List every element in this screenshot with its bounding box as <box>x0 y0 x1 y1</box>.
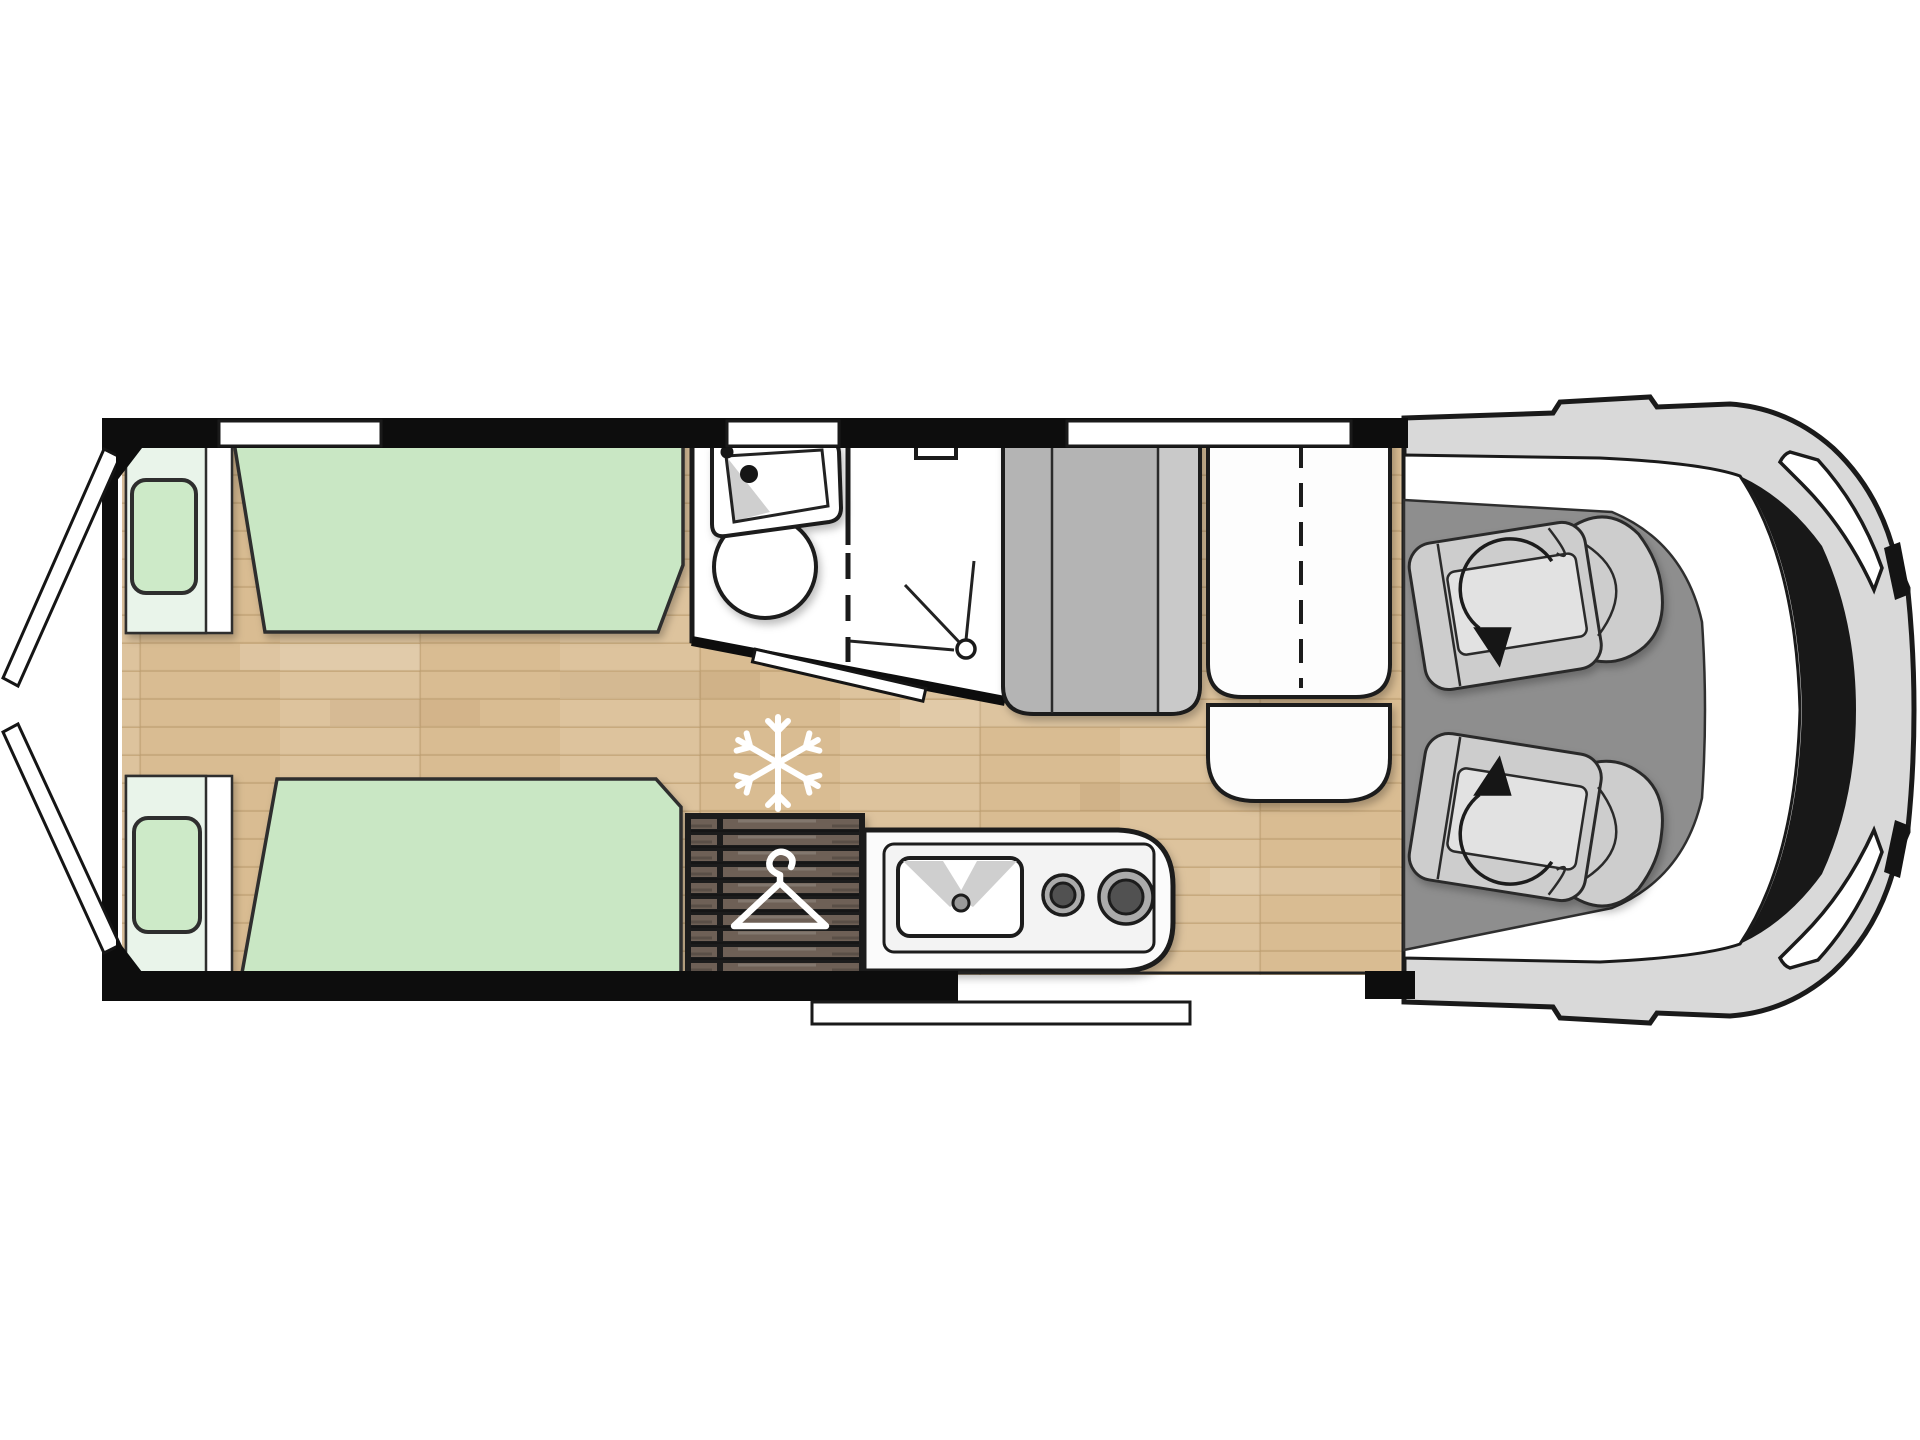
entry-step <box>812 1002 1190 1024</box>
window-bedroom <box>219 421 381 446</box>
kitchen-tap <box>953 895 969 911</box>
driver-cab <box>1404 397 1914 1023</box>
window-washroom <box>727 421 839 446</box>
rear-doors-open <box>3 448 142 972</box>
wall-bottom <box>102 971 958 1001</box>
bed-pillow-top <box>132 480 196 593</box>
floorplan-page <box>0 0 1920 1440</box>
bed-mattress-bottom <box>242 779 681 973</box>
dinette-seat <box>1208 705 1390 801</box>
bathroom-tap-dot <box>740 465 758 483</box>
motorhome-floorplan <box>0 0 1920 1440</box>
bed-pillow-bottom <box>134 818 200 932</box>
wardrobe <box>688 816 862 974</box>
window-dinette <box>1067 421 1351 446</box>
wall-bottom-cab-piece <box>1365 971 1415 999</box>
kitchen <box>864 830 1173 971</box>
bed-mattress-top <box>232 430 683 632</box>
